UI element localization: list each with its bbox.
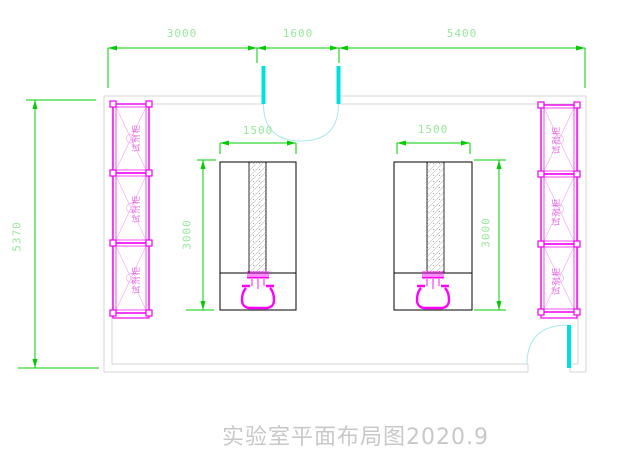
cad-drawing-canvas[interactable]: 3000 1600 5400 5370 1500 3000 1500 3000 … — [0, 0, 619, 469]
cabinet-end-cap — [541, 312, 577, 318]
right-bench — [394, 162, 472, 310]
cabinet-end-cap — [113, 313, 149, 318]
door-leaf-right — [337, 66, 341, 104]
bench-hatch-strip — [427, 162, 444, 273]
dim-bench-left-depth: 3000 — [181, 205, 194, 265]
dim-bench-left-width: 1500 — [228, 124, 288, 137]
door-swing-arc — [527, 325, 569, 364]
bench-hatch-strip — [249, 162, 266, 273]
dim-left-overall: 5370 — [11, 207, 24, 267]
cabinet-label: 试剂柜 — [131, 118, 143, 158]
door-leaf-left — [262, 66, 266, 104]
dim-top-middle: 1600 — [268, 27, 328, 40]
cabinet-label: 试剂柜 — [131, 189, 143, 229]
door-leaf — [567, 325, 571, 368]
cabinet-label: 试剂柜 — [551, 120, 563, 160]
left-bench — [220, 162, 296, 310]
dim-top-right: 5400 — [432, 27, 492, 40]
bottom-door — [527, 325, 571, 368]
dimension-arrowheads — [33, 46, 586, 369]
floorplan-drawing — [0, 0, 619, 469]
drawing-title: 实验室平面布局图2020.9 — [222, 419, 482, 449]
room-walls — [104, 96, 586, 372]
dim-bench-right-depth: 3000 — [480, 203, 493, 263]
cabinet-label: 试剂柜 — [131, 260, 143, 300]
cabinet-label: 试剂柜 — [551, 192, 563, 232]
dim-top-left: 3000 — [152, 27, 212, 40]
cabinet-label: 试剂柜 — [551, 261, 563, 301]
dim-bench-right-width: 1500 — [403, 123, 463, 136]
